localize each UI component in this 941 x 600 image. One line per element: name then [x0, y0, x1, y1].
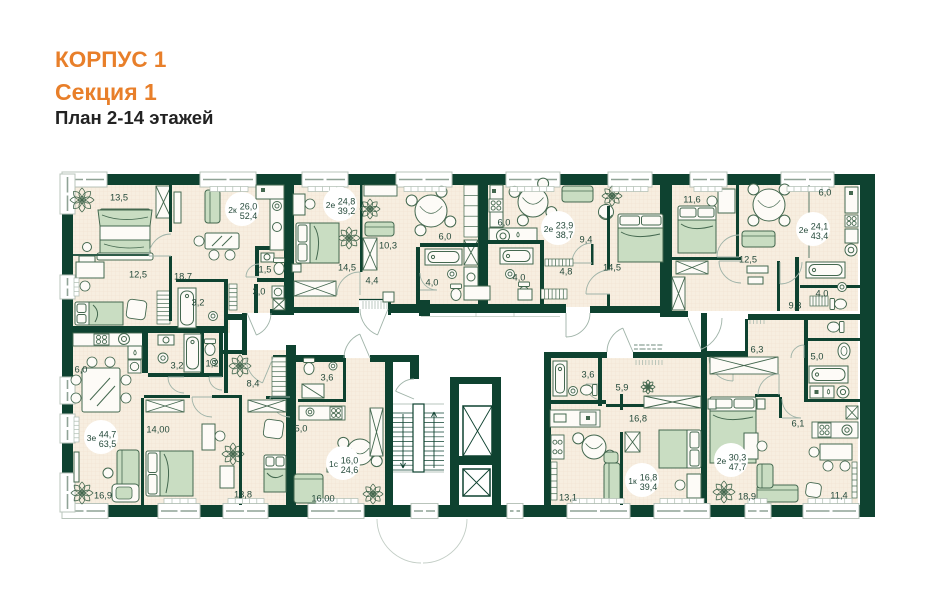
- svg-text:2е: 2е: [717, 456, 727, 466]
- svg-text:6,0: 6,0: [819, 188, 832, 198]
- svg-text:16,00: 16,00: [311, 494, 334, 504]
- svg-text:23,9: 23,9: [556, 221, 574, 231]
- svg-text:2е: 2е: [544, 224, 554, 234]
- svg-text:3е: 3е: [87, 433, 97, 443]
- svg-text:13,5: 13,5: [110, 193, 128, 203]
- svg-text:4,4: 4,4: [366, 276, 379, 286]
- svg-text:13,8: 13,8: [234, 490, 252, 500]
- svg-text:4,8: 4,8: [560, 267, 573, 277]
- svg-text:63,5: 63,5: [99, 439, 117, 449]
- svg-text:2е: 2е: [326, 200, 336, 210]
- svg-text:47,7: 47,7: [729, 462, 747, 472]
- svg-text:4,0: 4,0: [816, 289, 829, 299]
- svg-text:4,0: 4,0: [513, 273, 526, 283]
- svg-text:14,5: 14,5: [603, 263, 621, 273]
- svg-text:2е: 2е: [799, 225, 809, 235]
- svg-text:5,9: 5,9: [616, 383, 629, 393]
- svg-text:5,0: 5,0: [811, 352, 824, 362]
- svg-text:8,4: 8,4: [247, 379, 260, 389]
- svg-text:52,4: 52,4: [240, 211, 258, 221]
- svg-text:9,3: 9,3: [789, 301, 802, 311]
- svg-text:4,0: 4,0: [426, 278, 439, 288]
- svg-text:14,00: 14,00: [146, 425, 169, 435]
- svg-text:2к: 2к: [228, 205, 237, 215]
- svg-text:16,8: 16,8: [629, 414, 647, 424]
- svg-text:3,6: 3,6: [582, 370, 595, 380]
- svg-text:6,0: 6,0: [75, 365, 88, 375]
- svg-text:12,5: 12,5: [129, 270, 147, 280]
- svg-text:18,7: 18,7: [174, 272, 192, 282]
- svg-text:6,3: 6,3: [751, 345, 764, 355]
- svg-text:43,4: 43,4: [811, 231, 829, 241]
- svg-text:30,3: 30,3: [729, 453, 747, 463]
- svg-text:18,9: 18,9: [738, 492, 756, 502]
- svg-text:1,5: 1,5: [259, 265, 272, 275]
- svg-text:1,2: 1,2: [206, 359, 219, 369]
- svg-text:6,0: 6,0: [498, 218, 511, 228]
- svg-text:24,8: 24,8: [338, 197, 356, 207]
- svg-text:14,5: 14,5: [338, 263, 356, 273]
- svg-text:5,0: 5,0: [295, 424, 308, 434]
- svg-text:24,6: 24,6: [341, 465, 359, 475]
- svg-text:39,2: 39,2: [338, 206, 356, 216]
- svg-text:3,2: 3,2: [192, 298, 205, 308]
- svg-text:24,1: 24,1: [811, 222, 829, 232]
- svg-text:38,7: 38,7: [556, 230, 574, 240]
- svg-text:КОРПУС 1: КОРПУС 1: [55, 47, 166, 72]
- svg-text:6,0: 6,0: [439, 232, 452, 242]
- svg-text:16,9: 16,9: [94, 491, 112, 501]
- svg-text:1к: 1к: [628, 476, 637, 486]
- svg-text:3,0: 3,0: [253, 287, 266, 297]
- svg-text:Секция 1: Секция 1: [55, 79, 157, 105]
- svg-text:6,1: 6,1: [792, 419, 805, 429]
- svg-text:12,5: 12,5: [739, 255, 757, 265]
- svg-text:16,8: 16,8: [640, 473, 658, 483]
- svg-text:10,3: 10,3: [379, 241, 397, 251]
- svg-text:44,7: 44,7: [99, 430, 117, 440]
- svg-text:26,0: 26,0: [240, 202, 258, 212]
- svg-text:План 2-14 этажей: План 2-14 этажей: [55, 107, 213, 128]
- svg-text:3,2: 3,2: [171, 361, 184, 371]
- svg-text:16,0: 16,0: [341, 456, 359, 466]
- svg-text:11,4: 11,4: [830, 491, 847, 501]
- svg-text:3,6: 3,6: [321, 373, 334, 383]
- svg-text:1с: 1с: [329, 459, 339, 469]
- svg-text:9,4: 9,4: [580, 235, 593, 245]
- svg-text:13,1: 13,1: [559, 493, 577, 503]
- svg-text:39,4: 39,4: [640, 482, 658, 492]
- svg-text:11,6: 11,6: [683, 195, 700, 205]
